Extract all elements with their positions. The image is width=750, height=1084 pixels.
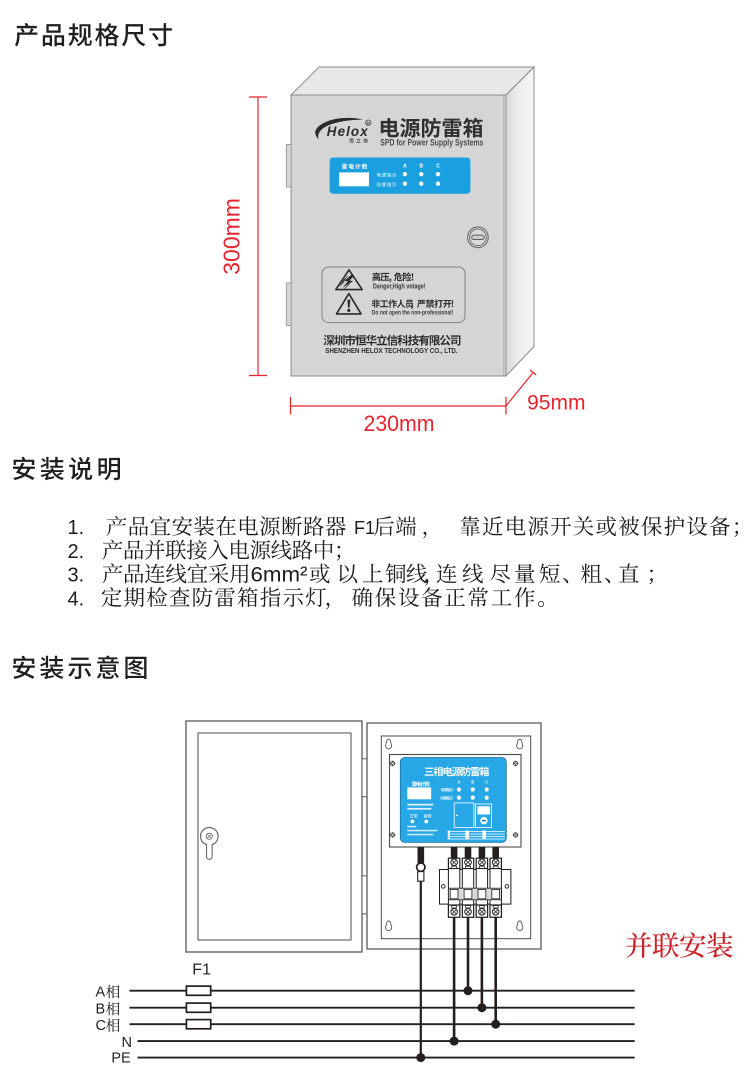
svg-text:4.: 4.	[68, 588, 85, 610]
svg-text:1.: 1.	[68, 517, 85, 539]
svg-text:SPD for Power Supply Systems: SPD for Power Supply Systems	[380, 137, 483, 147]
svg-text:B: B	[419, 164, 423, 170]
svg-text:A: A	[96, 985, 106, 1001]
svg-text:230mm: 230mm	[364, 411, 435, 436]
svg-text:B: B	[471, 780, 474, 785]
svg-text:F1: F1	[192, 961, 211, 978]
svg-text:R: R	[367, 121, 370, 126]
svg-text:N: N	[122, 1035, 132, 1051]
svg-text:C: C	[485, 780, 488, 785]
svg-text:300mm: 300mm	[218, 198, 244, 275]
svg-text:PE: PE	[111, 1050, 131, 1066]
svg-text:Helox: Helox	[327, 124, 369, 139]
svg-text:C: C	[96, 1018, 106, 1034]
svg-text:A: A	[457, 780, 460, 785]
svg-text:C: C	[436, 164, 440, 170]
svg-text:A: A	[403, 164, 407, 170]
svg-text:2.: 2.	[68, 541, 85, 563]
svg-text:F1: F1	[354, 518, 375, 538]
svg-text:3.: 3.	[68, 565, 85, 587]
svg-text:Danger,High votage!: Danger,High votage!	[373, 283, 426, 290]
svg-text:95mm: 95mm	[527, 392, 585, 415]
svg-text:SHENZHEN HELOX TECHNOLOGY CO.,: SHENZHEN HELOX TECHNOLOGY CO., LTD.	[325, 346, 457, 355]
svg-text:B: B	[96, 1002, 106, 1018]
svg-text:Do not open the non-profession: Do not open the non-professional!	[372, 309, 454, 316]
svg-text:6mm²: 6mm²	[251, 564, 308, 587]
